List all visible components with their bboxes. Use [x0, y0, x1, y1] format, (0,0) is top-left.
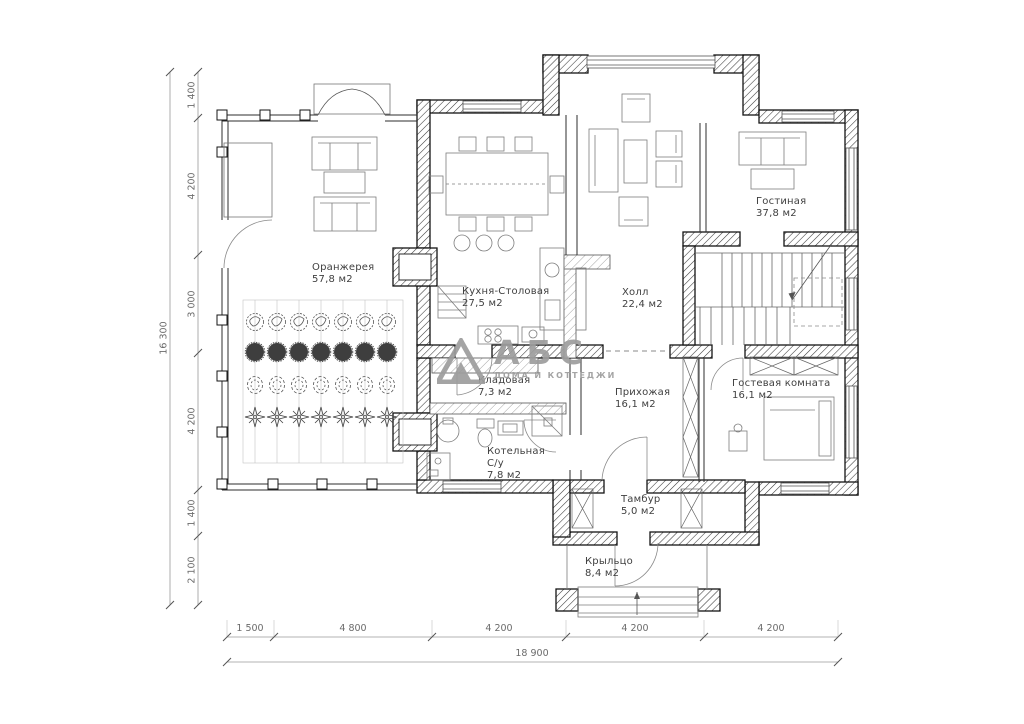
- dim-h-total: 18 900: [515, 648, 548, 659]
- room-label-guest-room: Гостевая комната16,1 м2: [732, 378, 830, 402]
- abs-logo-icon: [437, 338, 485, 384]
- floor-plan-page: Оранжерея57,8 м2 Кухня-Столовая27,5 м2 Х…: [0, 0, 1024, 724]
- dim-h-3: 4 200: [485, 623, 512, 634]
- room-label-boiler-room: КотельнаяС/у7,8 м2: [487, 446, 545, 482]
- room-label-vestibule: Тамбур5,0 м2: [621, 494, 660, 518]
- room-label-orangery: Оранжерея57,8 м2: [312, 262, 374, 286]
- dim-h-4: 4 200: [621, 623, 648, 634]
- dim-v-3: 3 000: [187, 290, 198, 317]
- room-label-hall: Холл22,4 м2: [622, 287, 663, 311]
- dim-v-total: 16 300: [159, 321, 170, 354]
- dim-h-1: 1 500: [236, 623, 263, 634]
- dim-v-2: 4 200: [187, 172, 198, 199]
- room-label-porch: Крыльцо8,4 м2: [585, 556, 633, 580]
- orangery-walls: [222, 115, 417, 490]
- room-label-living-room: Гостиная37,8 м2: [756, 196, 806, 220]
- abs-logo-tagline: ДОМА И КОТТЕДЖИ: [494, 371, 616, 380]
- staircase: [695, 242, 845, 345]
- dim-h-2: 4 800: [339, 623, 366, 634]
- dim-h-5: 4 200: [757, 623, 784, 634]
- room-label-kitchen-dining: Кухня-Столовая27,5 м2: [462, 286, 549, 310]
- abs-logo: АБС ДОМА И КОТТЕДЖИ: [437, 338, 616, 384]
- dim-v-6: 2 100: [187, 556, 198, 583]
- abs-logo-name: АБС: [494, 338, 616, 368]
- dim-v-5: 1 400: [187, 499, 198, 526]
- orangery-columns: [217, 110, 377, 489]
- dim-v-4: 4 200: [187, 407, 198, 434]
- dim-v-1: 1 400: [187, 81, 198, 108]
- room-label-entrance-hall: Прихожая16,1 м2: [615, 387, 670, 411]
